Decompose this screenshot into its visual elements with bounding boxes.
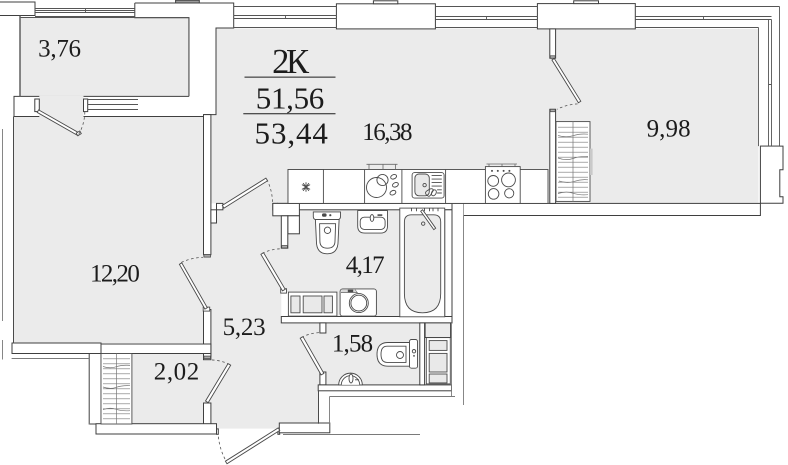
svg-text:5,23: 5,23: [223, 314, 266, 341]
svg-text:12,20: 12,20: [90, 261, 140, 288]
svg-text:2,02: 2,02: [154, 359, 200, 386]
svg-text:9,98: 9,98: [647, 116, 691, 143]
svg-text:51,56: 51,56: [256, 81, 325, 116]
svg-text:3,76: 3,76: [38, 36, 81, 63]
svg-text:1,58: 1,58: [332, 330, 373, 357]
svg-text:16,38: 16,38: [362, 119, 412, 146]
svg-text:4,17: 4,17: [346, 252, 385, 279]
svg-text:53,44: 53,44: [255, 115, 329, 150]
svg-text:2К: 2К: [272, 43, 310, 81]
